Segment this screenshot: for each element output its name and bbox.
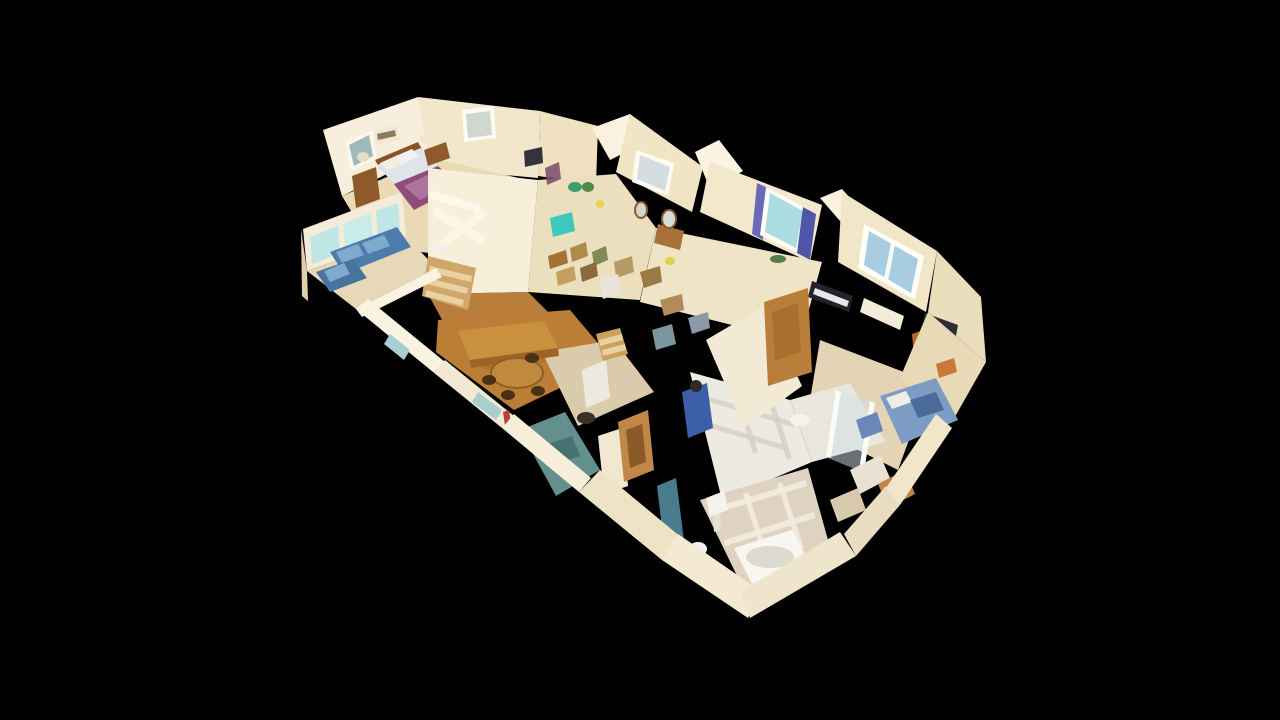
lamp-left xyxy=(357,152,369,162)
hall-window-glass xyxy=(466,111,492,138)
dining-chair-2 xyxy=(531,386,545,396)
yellow-ornament xyxy=(596,200,604,208)
dining-chair-3 xyxy=(501,390,515,400)
dining-chair-4 xyxy=(525,353,539,363)
house-plant xyxy=(582,182,594,192)
lamp-right xyxy=(420,134,432,144)
radiator xyxy=(860,298,904,330)
kitchen-clutter-9 xyxy=(688,312,710,334)
landing-floor xyxy=(528,174,656,300)
dollhouse-model xyxy=(0,0,1280,720)
dining-chair-1 xyxy=(482,375,496,385)
pine-door-panel xyxy=(772,303,801,361)
green-rug xyxy=(770,255,786,263)
dollhouse-viewport[interactable] xyxy=(0,0,1280,720)
desk-lamp-green xyxy=(568,182,582,192)
hall-basin xyxy=(431,242,445,252)
oval-wall-mirror xyxy=(635,202,647,218)
sink-pedestal-base xyxy=(713,513,721,532)
screen: { "meta": { "view": "3d-dollhouse-cutawa… xyxy=(0,0,1280,720)
dog xyxy=(577,412,595,424)
dressing-mirror xyxy=(662,210,676,228)
lemon-bowl xyxy=(665,257,675,265)
edge-wall-1 xyxy=(356,299,445,372)
round-dining-table xyxy=(491,358,543,388)
second-sink xyxy=(790,414,810,426)
kitchen-clutter-10 xyxy=(652,324,676,350)
person-head xyxy=(690,380,702,392)
